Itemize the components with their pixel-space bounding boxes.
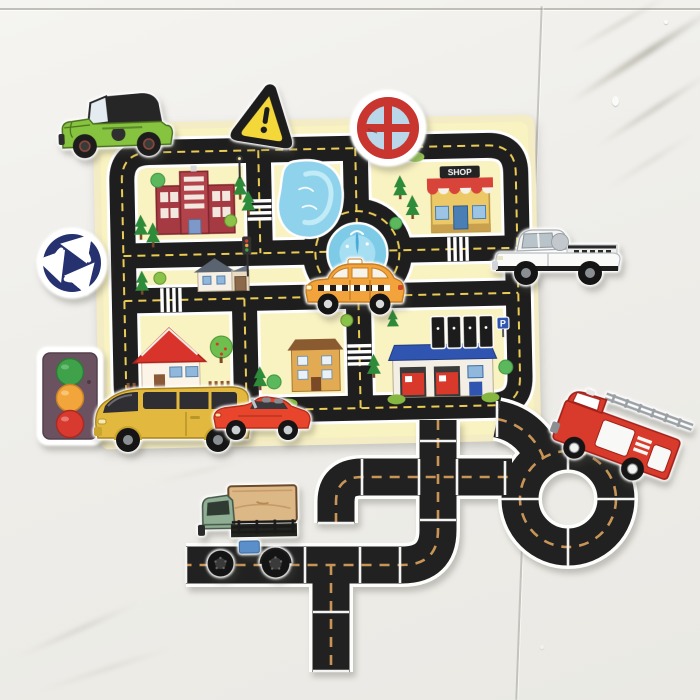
cargo-truck-sticker: [194, 479, 306, 583]
taxi-sticker: [298, 252, 410, 318]
warning-sign-sticker: [223, 74, 310, 159]
jeep-sticker: [55, 80, 182, 162]
pickup-truck-sticker: [490, 218, 626, 292]
no-entry-sign-sticker: [348, 88, 428, 168]
sports-car-sticker: [210, 384, 314, 444]
photo-scene: SHOP: [0, 0, 700, 700]
roundabout-sign-sticker: [36, 226, 108, 300]
